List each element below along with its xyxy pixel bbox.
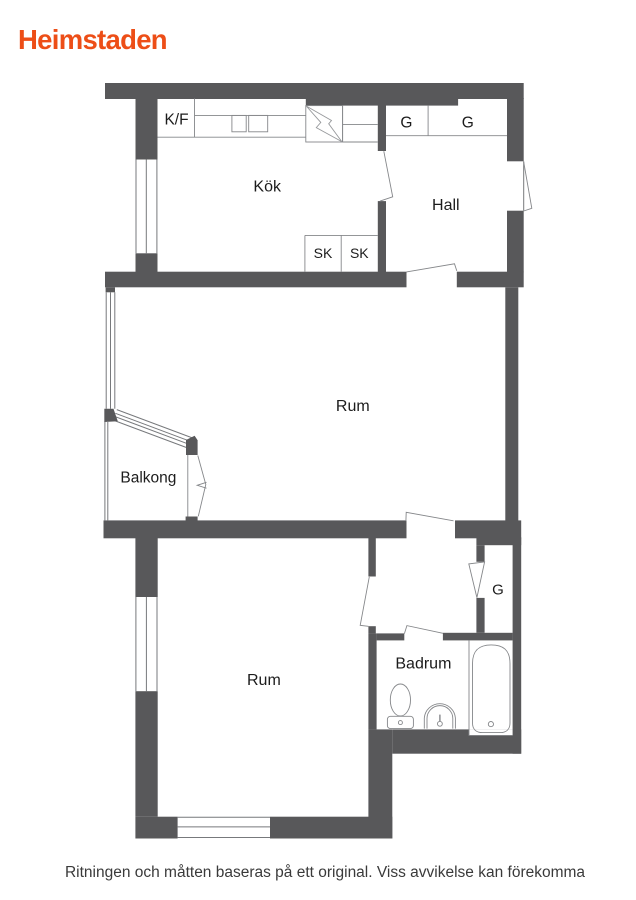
svg-text:Rum: Rum [247,672,281,689]
svg-text:Kök: Kök [253,179,282,196]
svg-text:G: G [462,115,474,132]
svg-text:SK: SK [350,245,369,261]
svg-text:K/F: K/F [164,111,188,128]
svg-text:G: G [400,115,412,132]
svg-text:Rum: Rum [336,398,370,415]
svg-text:Hall: Hall [432,197,460,214]
svg-text:SK: SK [314,245,333,261]
svg-text:Balkong: Balkong [120,470,176,487]
svg-text:G: G [492,581,504,598]
svg-text:Badrum: Badrum [395,656,451,673]
